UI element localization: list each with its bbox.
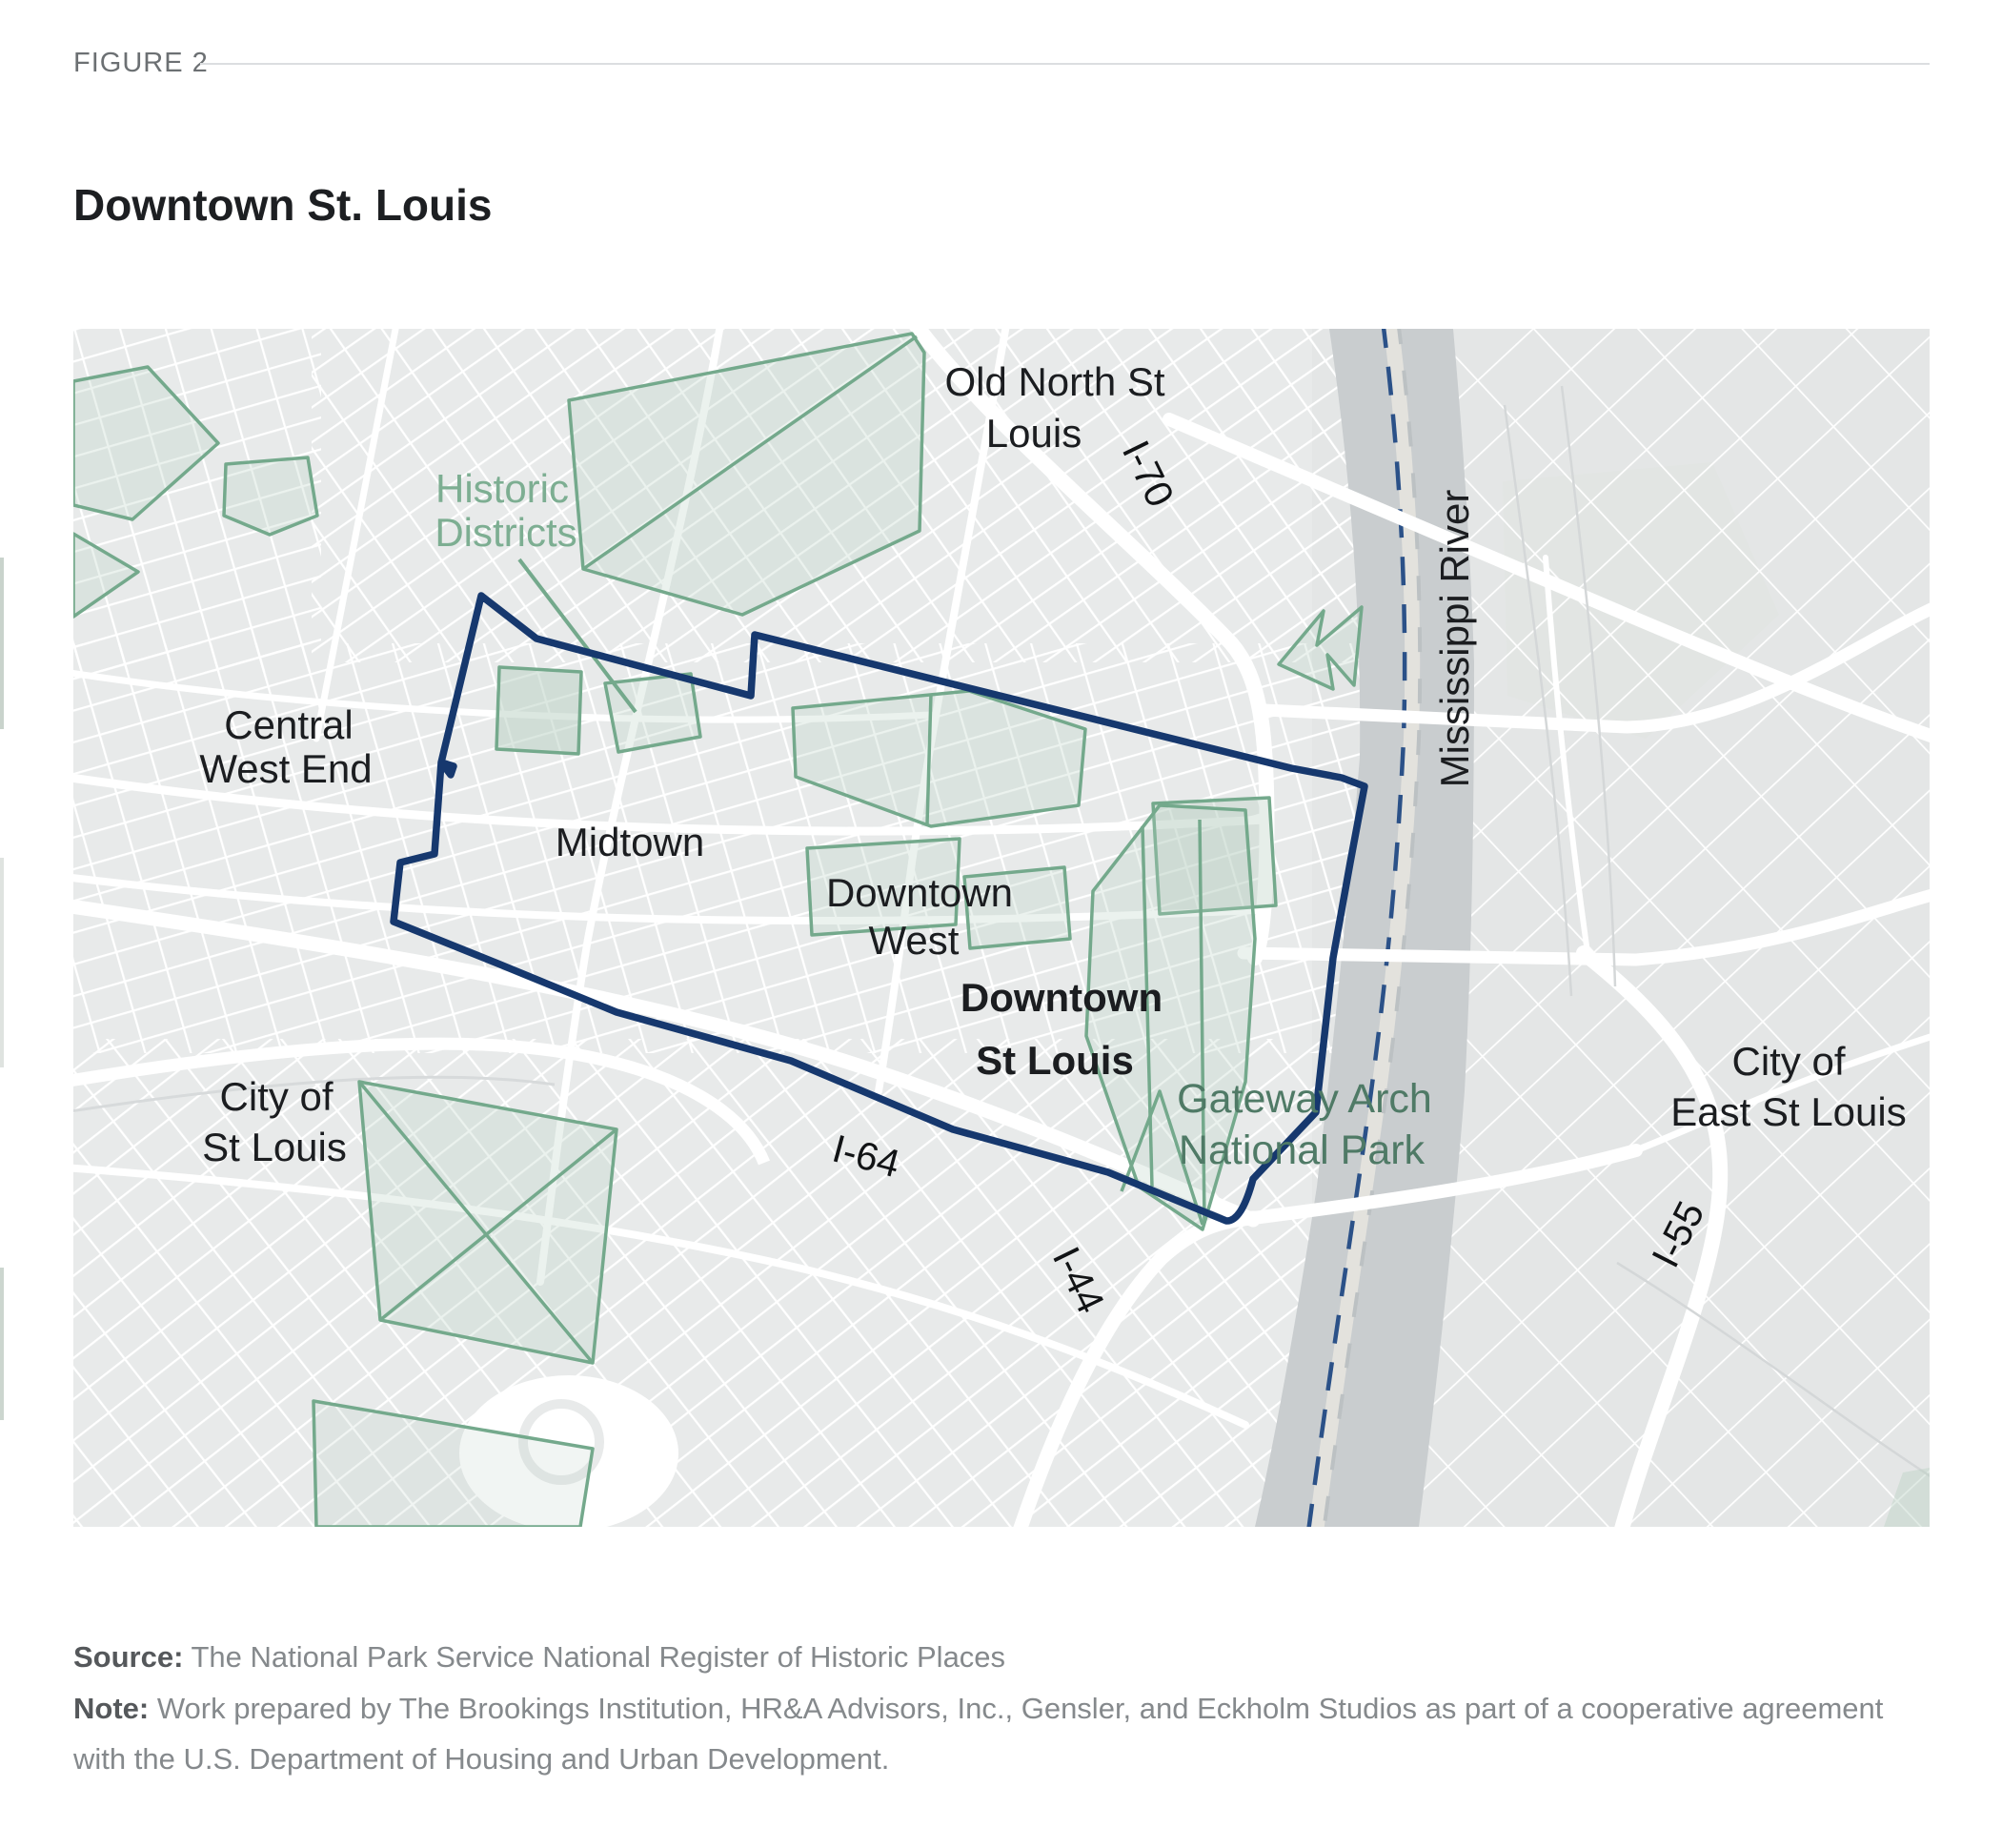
label-mississippi-river: Mississippi River — [1432, 490, 1477, 788]
note-line: Note: Work prepared by The Brookings Ins… — [73, 1683, 1933, 1785]
label-old-north-2: Louis — [986, 411, 1082, 456]
label-downtown-west-1: Downtown — [826, 870, 1013, 915]
figure-footer: Source: The National Park Service Nation… — [73, 1632, 1933, 1785]
screen-edge-artifact — [0, 858, 4, 1067]
label-city-of-east-st-louis-1: City of — [1731, 1039, 1845, 1084]
label-midtown: Midtown — [556, 820, 704, 864]
figure-label: FIGURE 2 — [73, 48, 209, 79]
page-title: Downtown St. Louis — [73, 179, 493, 231]
label-historic-districts-1: Historic — [435, 466, 569, 511]
screen-edge-artifact — [0, 558, 4, 729]
label-downtown-west-2: West — [869, 918, 960, 963]
note-label: Note: — [73, 1692, 149, 1725]
downtown-st-louis-map: Old North St Louis I-70 Historic Distric… — [73, 329, 1930, 1527]
figure-rule — [200, 63, 1930, 65]
label-gateway-arch-1: Gateway Arch — [1177, 1076, 1432, 1122]
screen-edge-artifact — [0, 1268, 4, 1420]
label-city-of-st-louis-1: City of — [219, 1074, 333, 1119]
historic-district — [605, 674, 700, 752]
historic-district-crossed — [359, 1082, 617, 1363]
label-city-of-st-louis-2: St Louis — [202, 1125, 347, 1169]
source-line: Source: The National Park Service Nation… — [73, 1632, 1933, 1683]
source-text: The National Park Service National Regis… — [183, 1640, 1005, 1674]
source-label: Source: — [73, 1640, 183, 1674]
label-historic-districts-2: Districts — [435, 510, 576, 555]
map-canvas: Old North St Louis I-70 Historic Distric… — [73, 329, 1930, 1527]
label-gateway-arch-2: National Park — [1179, 1127, 1426, 1173]
note-text: Work prepared by The Brookings Instituti… — [73, 1692, 1883, 1777]
historic-district — [496, 667, 581, 754]
label-downtown-st-louis-1: Downtown — [961, 975, 1163, 1020]
label-central-west-end-1: Central — [224, 702, 353, 747]
label-central-west-end-2: West End — [199, 746, 372, 791]
label-city-of-east-st-louis-2: East St Louis — [1670, 1089, 1906, 1134]
label-old-north-1: Old North St — [944, 359, 1164, 404]
figure-page: FIGURE 2 Downtown St. Louis — [0, 0, 2002, 1848]
label-downtown-st-louis-2: St Louis — [976, 1038, 1134, 1083]
